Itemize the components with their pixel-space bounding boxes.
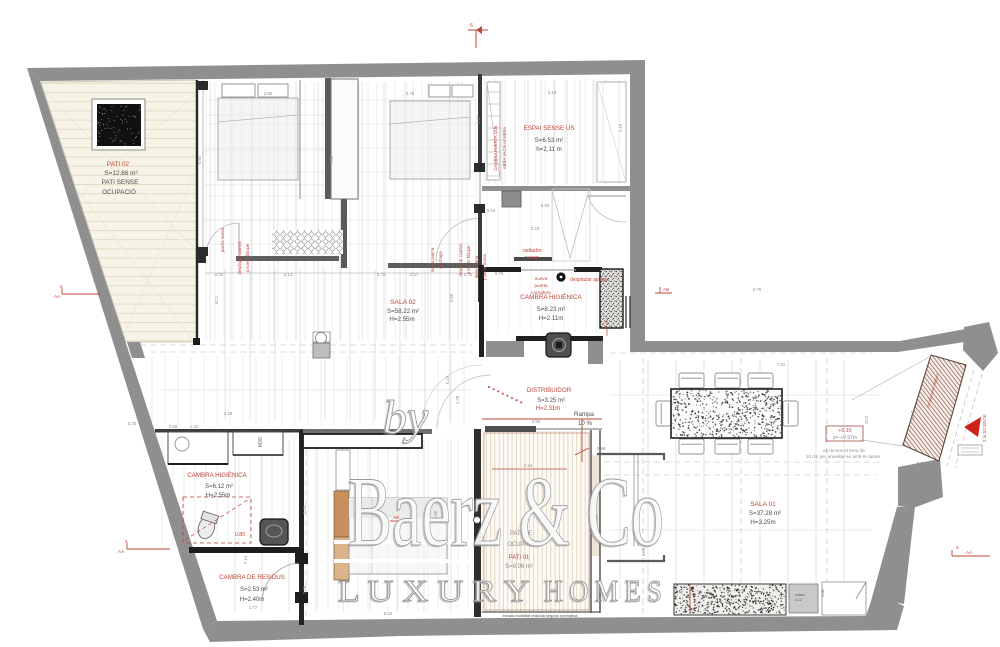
svg-text:2.67: 2.67 (410, 272, 419, 277)
svg-text:ESPAI SENSE ÚS: ESPAI SENSE ÚS (524, 125, 575, 132)
svg-text:0.88: 0.88 (597, 446, 606, 451)
svg-text:2.13: 2.13 (243, 555, 248, 564)
svg-text:H=2.40m: H=2.40m (240, 597, 265, 603)
svg-text:1.29: 1.29 (455, 395, 460, 404)
svg-text:5: 5 (60, 284, 63, 289)
svg-text:AA: AA (54, 294, 61, 299)
svg-text:10 cm per anivellar-se amb el: 10 cm per anivellar-se amb el camar (806, 454, 881, 459)
svg-text:enva’ nou: enva’ nou (604, 318, 609, 335)
svg-text:7.22: 7.22 (777, 362, 786, 367)
svg-text:M30: M30 (258, 437, 264, 447)
svg-text:nueva: nueva (535, 276, 548, 281)
svg-text:2.75: 2.75 (406, 91, 415, 96)
svg-text:escala mobilitat reduïda segon: escala mobilitat reduïda segons normativ… (503, 613, 579, 618)
svg-text:3.18: 3.18 (548, 90, 557, 95)
svg-text:desplazar aplique: desplazar aplique (570, 277, 609, 283)
svg-text:PATI SENSE: PATI SENSE (102, 179, 139, 186)
svg-text:S=6.53 m²: S=6.53 m² (535, 137, 564, 144)
svg-text:OCUPACIÓ: OCUPACIÓ (102, 187, 136, 196)
svg-text:radiador: radiador (522, 248, 541, 254)
svg-text:es recreix el terra de: es recreix el terra de (823, 448, 865, 453)
svg-text:H=2.31m: H=2.31m (536, 406, 561, 412)
svg-text:2.55: 2.55 (532, 419, 541, 424)
svg-text:S=12.86 m²: S=12.86 m² (104, 170, 137, 177)
svg-text:S=3.25 m²: S=3.25 m² (537, 398, 565, 404)
svg-text:6.90: 6.90 (197, 155, 202, 164)
svg-text:H O M E S: H O M E S (544, 573, 662, 608)
svg-text:nuevo: nuevo (525, 255, 539, 261)
svg-text:CAMBRA DE RESIDUS: CAMBRA DE RESIDUS (219, 574, 285, 581)
svg-text:AA: AA (966, 550, 973, 555)
svg-text:DISTRIBUIDOR: DISTRIBUIDOR (527, 387, 572, 394)
svg-text:CAMBRA HIGIÈNICA: CAMBRA HIGIÈNICA (520, 292, 582, 301)
svg-text:19.7: 19.7 (910, 410, 915, 419)
svg-text:0.58: 0.58 (169, 424, 178, 429)
svg-text:2.23: 2.23 (531, 226, 540, 231)
svg-text:3.00: 3.00 (329, 155, 334, 164)
svg-text:+0.10: +0.10 (838, 428, 851, 434)
svg-text:S=8.23 m²: S=8.23 m² (537, 306, 566, 313)
svg-text:S=2.53 m²: S=2.53 m² (240, 587, 268, 593)
svg-text:5: 5 (125, 539, 128, 544)
svg-text:5.62: 5.62 (384, 611, 393, 616)
svg-text:SALA 01: SALA 01 (750, 501, 776, 508)
svg-text:AB: AB (663, 287, 669, 292)
svg-text:1.00: 1.00 (820, 588, 825, 597)
svg-text:6: 6 (470, 23, 473, 29)
svg-text:2.13: 2.13 (284, 272, 293, 277)
svg-text:puerta nueva: puerta nueva (220, 227, 225, 252)
svg-text:2.03: 2.03 (302, 505, 307, 514)
svg-text:sofars: sofars (795, 593, 805, 597)
svg-text:10 %: 10 % (578, 420, 593, 427)
svg-text:6.19: 6.19 (445, 375, 450, 384)
svg-text:Baerz & Co: Baerz & Co (348, 456, 664, 567)
svg-text:2.80: 2.80 (264, 91, 273, 96)
svg-text:corredera: corredera (531, 290, 551, 295)
svg-text:nueva puerta: nueva puerta (430, 247, 435, 272)
svg-text:2.19: 2.19 (618, 123, 623, 132)
svg-text:0.75: 0.75 (753, 287, 762, 292)
svg-text:L U X U R Y: L U X U R Y (338, 573, 530, 608)
svg-text:a nuevo bloque: a nuevo bloque (466, 245, 471, 274)
svg-text:H=2.55m: H=2.55m (389, 316, 414, 323)
svg-text:2.09: 2.09 (302, 585, 307, 594)
svg-text:y cerrar hueco: y cerrar hueco (482, 253, 487, 280)
svg-text:2 ta 52 SDOK: 2 ta 52 SDOK (982, 414, 987, 442)
svg-text:H=2.11m: H=2.11m (539, 315, 564, 322)
svg-text:0.30: 0.30 (215, 272, 224, 277)
svg-text:desplazar cuartos: desplazar cuartos (458, 243, 463, 276)
svg-text:AA: AA (118, 549, 125, 554)
svg-text:CAMBRA PUERTA QUE: CAMBRA PUERTA QUE (493, 125, 498, 171)
svg-text:PATI 02: PATI 02 (107, 161, 130, 168)
svg-text:S=58.22 m²: S=58.22 m² (387, 308, 419, 315)
svg-text:0.54: 0.54 (487, 208, 496, 213)
svg-text:puerta: puerta (534, 283, 547, 288)
svg-text:n.12: n.12 (795, 598, 802, 602)
svg-text:3.18: 3.18 (224, 411, 233, 416)
svg-text:S=37.28 m²: S=37.28 m² (749, 510, 781, 517)
svg-text:H=3.25m: H=3.25m (750, 519, 775, 526)
svg-text:ABRA VACIA AFUERA: ABRA VACIA AFUERA (502, 127, 507, 169)
svg-text:62.1: 62.1 (214, 295, 219, 304)
svg-text:0.96: 0.96 (541, 203, 550, 208)
svg-text:de chapa: de chapa (438, 251, 443, 269)
svg-text:0.70: 0.70 (495, 271, 504, 276)
svg-text:desplazar cuartos: desplazar cuartos (237, 241, 242, 274)
svg-text:1.77: 1.77 (249, 605, 258, 610)
svg-text:h=2,11 m: h=2,11 m (536, 146, 562, 153)
svg-text:5: 5 (956, 545, 959, 550)
svg-text:6.88: 6.88 (449, 293, 454, 302)
svg-text:SALA 02: SALA 02 (390, 299, 416, 306)
svg-text:0.80: 0.80 (235, 532, 246, 538)
svg-text:0.33: 0.33 (128, 421, 137, 426)
svg-text:Rampa: Rampa (574, 411, 595, 418)
svg-text:10.2: 10.2 (864, 415, 869, 424)
svg-text:0.75: 0.75 (464, 272, 473, 277)
svg-text:0.70: 0.70 (377, 272, 386, 277)
svg-text:1.20: 1.20 (190, 424, 199, 429)
svg-text:CAMBRA HIGIÈNICA: CAMBRA HIGIÈNICA (187, 472, 247, 479)
svg-text:z=-+9,97m: z=-+9,97m (833, 435, 857, 441)
svg-text:by: by (383, 391, 429, 444)
svg-text:a nuevo bloque: a nuevo bloque (245, 243, 250, 272)
svg-text:H=2.55m: H=2.55m (206, 493, 231, 499)
svg-text:0.78: 0.78 (917, 461, 926, 466)
svg-text:2.97: 2.97 (476, 115, 481, 124)
svg-text:dejar puerta: dejar puerta (474, 255, 479, 278)
svg-text:S=6.12 m²: S=6.12 m² (205, 484, 233, 490)
